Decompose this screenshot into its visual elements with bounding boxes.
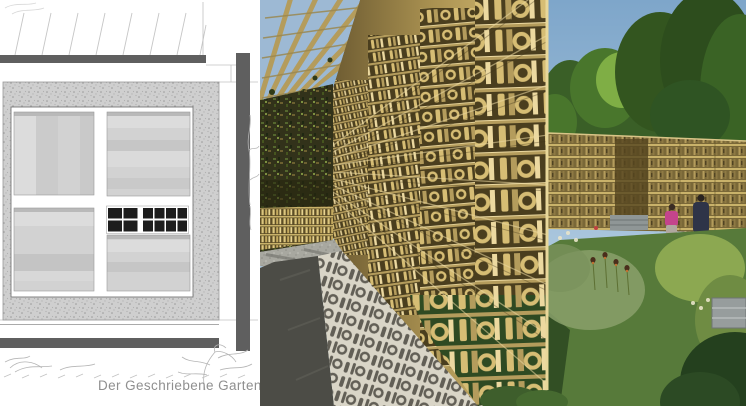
planting-bed-lower-left	[14, 208, 94, 291]
planting-bed-upper-left	[14, 112, 94, 195]
garden-photo	[260, 0, 746, 406]
stone-planter	[712, 298, 746, 328]
planting-bed-upper-right	[107, 112, 190, 196]
site-plan-drawing	[0, 0, 260, 406]
planting-bed-lower-right	[107, 235, 190, 291]
hedge-letter-wall	[260, 84, 333, 252]
wall-bar-right	[236, 53, 250, 351]
wall-bar-top	[0, 55, 206, 63]
plan-caption: Der Geschriebene Garten	[98, 378, 262, 393]
composite-image: Der Geschriebene Garten	[0, 0, 746, 406]
wall-bar-bottom	[0, 338, 219, 348]
black-table-grid	[107, 206, 189, 234]
